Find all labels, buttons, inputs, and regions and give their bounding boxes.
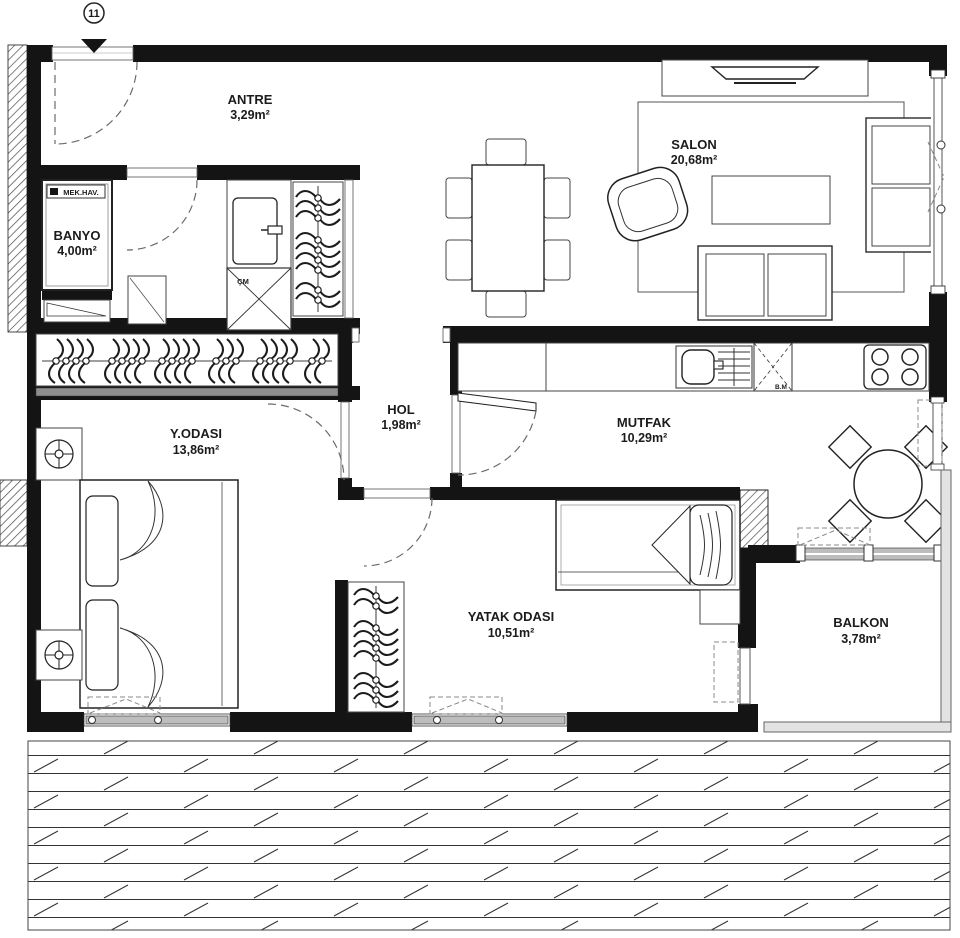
room-label-yatak: YATAK ODASI (468, 609, 554, 624)
dining-chair (544, 178, 570, 218)
kitchen-door-frame (452, 395, 460, 473)
floor-plan-drawing: 11 MEK.HAV. ÇM (0, 0, 960, 938)
single-bed (556, 500, 740, 590)
room-label-banyo: BANYO (54, 228, 101, 243)
sofa-bottom (698, 246, 832, 320)
double-bed (80, 480, 238, 708)
room-area-banyo: 4,00m² (57, 244, 97, 258)
balcony-railing-bottom (764, 722, 951, 732)
room-area-hol: 1,98m² (381, 418, 421, 432)
room-label-mutfak: MUTFAK (617, 415, 672, 430)
dining-chair (446, 240, 472, 280)
room-label-hol: HOL (387, 402, 415, 417)
floor-plan: 11 MEK.HAV. ÇM (0, 0, 960, 938)
dining-chair (486, 139, 526, 165)
balcony-railing-right (941, 470, 951, 732)
bath-door-frame (127, 168, 197, 177)
wardrobe-bath-right (293, 182, 343, 316)
column-hatch-yatak (740, 490, 768, 548)
mech-vent-label: MEK.HAV. (63, 188, 98, 197)
faucet (714, 361, 723, 369)
tv (712, 67, 818, 79)
dining-chair (446, 178, 472, 218)
washing-machine: ÇM (227, 268, 291, 330)
fridge (458, 343, 546, 391)
room-label-salon: SALON (671, 137, 717, 152)
shower-handle (268, 226, 282, 234)
pillow (690, 505, 732, 585)
washing-machine-label: ÇM (237, 277, 249, 286)
room-area-yatak: 10,51m² (488, 626, 535, 640)
dishwasher: B.M (754, 343, 792, 391)
nightstand-top (36, 428, 82, 480)
room-label-yodasi: Y.ODASI (170, 426, 222, 441)
party-wall-hatch-left-top (8, 45, 27, 332)
coffee-table (712, 176, 830, 224)
terrace-paving (28, 741, 950, 930)
room-label-balkon: BALKON (833, 615, 889, 630)
room-area-yodasi: 13,86m² (173, 443, 220, 457)
room-area-salon: 20,68m² (671, 153, 718, 167)
pillow (86, 496, 118, 586)
dining-table (472, 165, 544, 291)
wardrobe-hol (348, 582, 404, 712)
stove (864, 345, 926, 389)
mech-vent-icon (50, 188, 58, 195)
kitchen-sink (676, 346, 752, 388)
dining-chair (486, 291, 526, 317)
round-table (854, 450, 922, 518)
nightstand-bottom (36, 630, 82, 680)
dining-chair (544, 240, 570, 280)
room-area-antre: 3,29m² (230, 108, 270, 122)
dishwasher-label: B.M (775, 384, 787, 391)
sofa-right (866, 118, 938, 252)
entrance-marker-number: 11 (88, 8, 100, 20)
bedside-table (700, 590, 740, 624)
pillow (86, 600, 118, 690)
yatak-door-frame (364, 489, 430, 498)
room-label-antre: ANTRE (228, 92, 273, 107)
room-area-mutfak: 10,29m² (621, 431, 668, 445)
party-wall-hatch-left-mid (0, 480, 27, 546)
room-area-balkon: 3,78m² (841, 632, 881, 646)
